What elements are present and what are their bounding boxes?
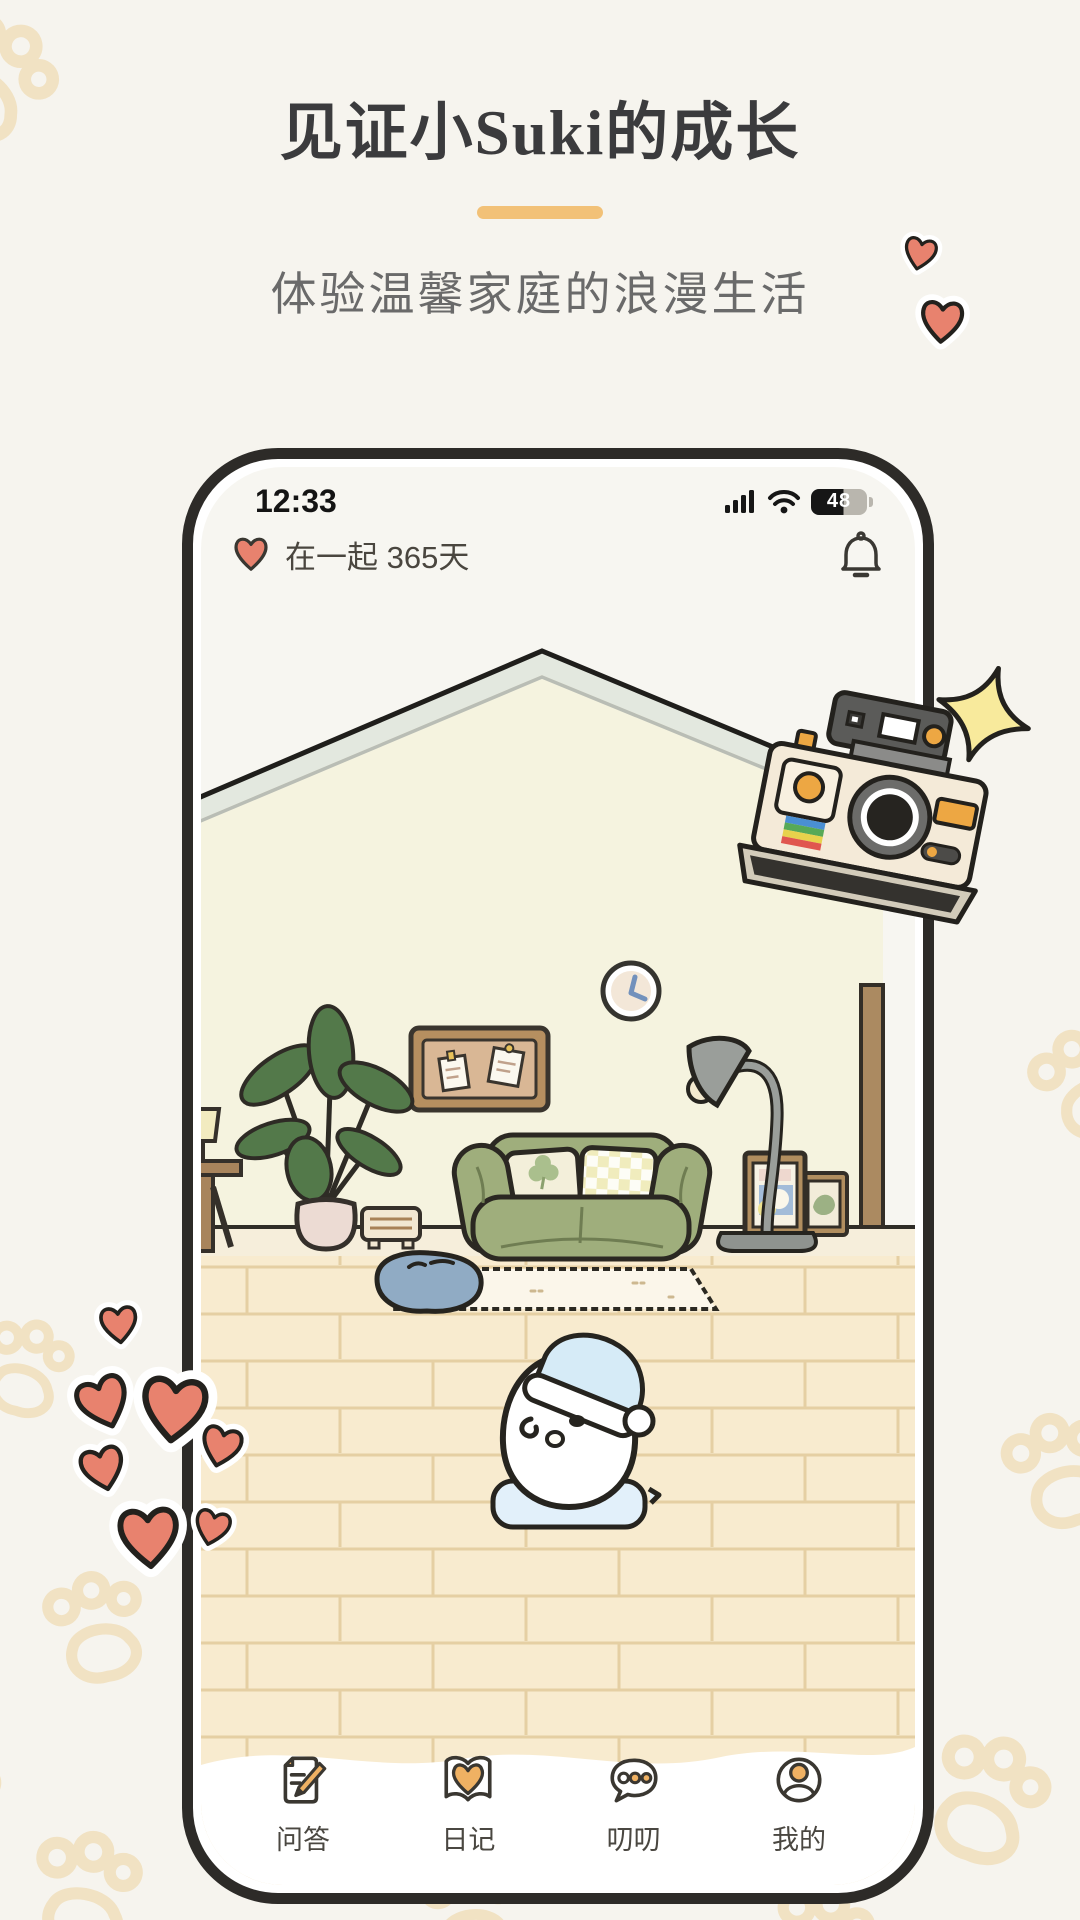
status-bar: 12:33 48 [201,483,915,520]
door-panel [861,985,883,1227]
chat-bubble-dots-icon [605,1751,663,1809]
bell-icon [841,531,881,577]
page-title: 见证小Suki的成长 [0,82,1080,173]
wall-clock [603,963,659,1019]
cap-pompom [625,1407,653,1435]
profile-person-icon [770,1751,828,1809]
app-header: 在一起 365天 [201,531,915,577]
tab-diary[interactable]: 日记 [428,1751,508,1857]
tab-label: 我的 [772,1818,826,1857]
sofa [450,1135,714,1259]
tab-profile[interactable]: 我的 [759,1751,839,1857]
tab-chat[interactable]: 叨叨 [594,1751,674,1857]
bulletin-board [411,1028,548,1110]
signal-bars-icon [725,489,757,515]
battery-percent: 48 [811,489,867,515]
radio [362,1208,420,1248]
pet-bed [377,1253,481,1312]
mouth [547,1432,563,1446]
tab-qa[interactable]: 问答 [263,1751,343,1857]
diary-book-heart-icon [439,1751,497,1809]
notification-bell-button[interactable] [841,531,881,577]
tab-label: 问答 [276,1818,330,1857]
battery-icon: 48 [811,489,873,515]
tab-bar: 问答 日记 叨叨 [201,1713,915,1885]
right-eye [569,1415,585,1427]
tab-label: 叨叨 [607,1818,661,1857]
qa-doc-pencil-icon [274,1751,332,1809]
status-time: 12:33 [255,483,337,520]
title-underline-decoration [477,206,603,219]
wifi-icon [767,489,801,515]
heart-decoration [914,286,971,357]
tab-label: 日记 [441,1818,495,1857]
heart-icon [229,534,273,574]
heart-decoration [109,1490,189,1587]
relationship-days-text: 在一起 365天 [285,532,469,577]
polaroid-camera-decoration [758,648,1038,968]
heart-decoration [93,1295,145,1356]
